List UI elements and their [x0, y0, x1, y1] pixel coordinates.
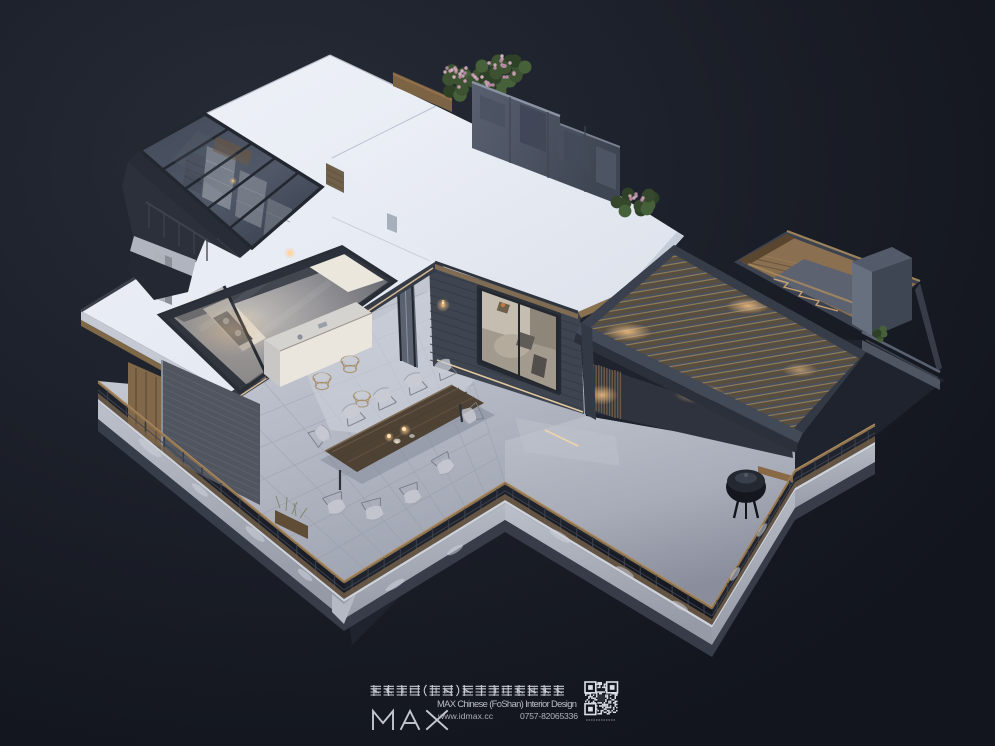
svg-text:MAX Chinese (FoShan) Interior: MAX Chinese (FoShan) Interior Design [437, 698, 577, 709]
svg-text:www.idmax.cc: www.idmax.cc [437, 711, 494, 721]
svg-text:0757-82065336: 0757-82065336 [520, 711, 578, 721]
